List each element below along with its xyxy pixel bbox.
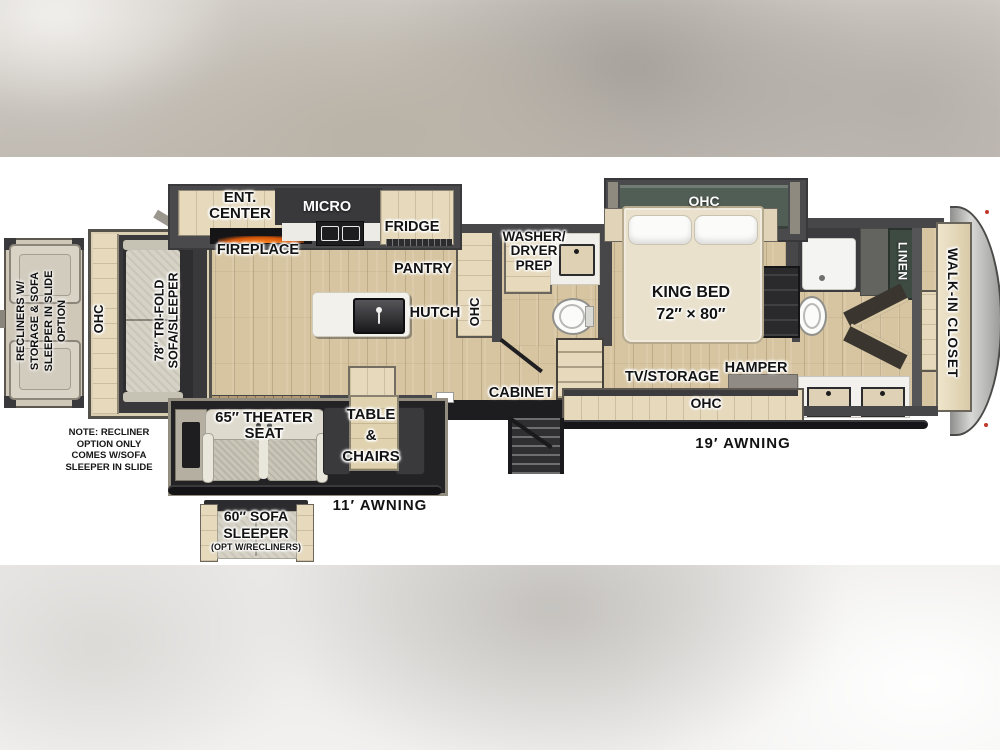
trifold-sofa-label: 78″ TRI-FOLD SOFA/SLEEPER (153, 245, 182, 395)
bedroom-tv-cabinet (762, 266, 800, 338)
background-blur-top-blob (0, 0, 1000, 157)
option-hitch-tab (0, 310, 5, 328)
sofa-opt-line-2: SLEEPER (196, 525, 316, 542)
rear-toilet-ring (803, 303, 821, 329)
background-blur-bottom (0, 565, 1000, 750)
theater-seat-left (209, 439, 261, 481)
entry-steps (508, 418, 564, 474)
background-blur-bottom-blob (0, 565, 1000, 750)
table-chairs-label: TABLE & CHAIRS (338, 404, 404, 467)
rear-toilet (797, 296, 827, 336)
sofa-option-label: 60″ SOFA SLEEPER (OPT W/RECLINERS) (196, 508, 316, 552)
note-line-3: COMES W/SOFA (52, 450, 166, 462)
note-line-4: SLEEPER IN SLIDE (52, 462, 166, 474)
tv-storage-label: TV/STORAGE (616, 370, 728, 385)
awning-19-label: 19′ AWNING (688, 436, 798, 452)
awning-rail-11ft (168, 485, 442, 495)
table-line-3: CHAIRS (338, 446, 404, 467)
vanity-faucet-left (826, 391, 831, 396)
rear-bath-divider (860, 228, 890, 296)
ohc-console-label: OHC (676, 396, 736, 411)
wd-line-2: DRYER (492, 244, 576, 258)
sofa-opt-line-1: 60″ SOFA (196, 508, 316, 525)
theater-seat-label: 65″ THEATER SEAT (198, 410, 330, 442)
ent-center-label: ENT. CENTER (190, 190, 290, 222)
micro-label: MICRO (300, 200, 354, 215)
hutch-label: HUTCH (406, 306, 464, 321)
marker-light-bottom (984, 423, 988, 427)
burner-grate-right (342, 226, 360, 241)
fridge-label: FRIDGE (383, 220, 441, 235)
pillow-left (628, 215, 692, 245)
hamper-label: HAMPER (720, 361, 792, 376)
awning-11-label: 11′ AWNING (330, 498, 430, 514)
entry-platform (428, 400, 570, 420)
wd-line-3: PREP (492, 259, 576, 273)
king-bed-line-2: 72″ × 80″ (622, 304, 760, 326)
fireplace-label: FIREPLACE (214, 243, 302, 258)
rv-floorplan-screenshot: { "title": "Fifth-wheel RV floor plan", … (0, 0, 1000, 750)
pillow-right (694, 215, 758, 245)
ohc-kitchen-label: OHC (468, 292, 482, 332)
option-box-label: RECLINERS W/ STORAGE & SOFA SLEEPER IN S… (15, 237, 73, 405)
bathroom-right-wall (598, 224, 612, 346)
ohc-bedroom-label: OHC (672, 194, 736, 209)
table-hutch (348, 366, 396, 398)
marker-light-top (985, 210, 989, 214)
king-bed-line-1: KING BED (622, 282, 760, 304)
table-line-2: & (338, 425, 404, 446)
nightstand-left (604, 208, 624, 242)
island-sink (353, 298, 405, 334)
walk-in-closet-label: WALK-IN CLOSET (945, 223, 959, 403)
option-line-4: OPTION (56, 237, 70, 405)
faucet-neck (378, 312, 380, 324)
toilet (552, 298, 594, 335)
vanity-faucet-right (880, 391, 885, 396)
kitchen-island (312, 292, 410, 337)
refrigerator (380, 190, 454, 245)
washer-dryer-label: WASHER/ DRYER PREP (492, 230, 576, 273)
toilet-tank (585, 306, 594, 327)
note-line-1: NOTE: RECLINER (52, 427, 166, 439)
option-line-1: RECLINERS W/ (15, 237, 29, 405)
awning-rail-19ft (560, 420, 928, 429)
king-bed-label: KING BED 72″ × 80″ (622, 282, 760, 325)
cabinet-label: CABINET (486, 386, 556, 401)
bed-slide-post-right (790, 182, 800, 234)
trifold-line-2: SOFA/SLEEPER (167, 245, 181, 395)
note-line-2: OPTION ONLY (52, 439, 166, 451)
burner-grate-left (321, 226, 339, 241)
recliner-option-module: RECLINERS W/ STORAGE & SOFA SLEEPER IN S… (4, 238, 84, 408)
theater-seat-right (267, 439, 319, 481)
recliner-note: NOTE: RECLINER OPTION ONLY COMES W/SOFA … (52, 427, 166, 473)
shower-drain (819, 275, 825, 281)
fridge-vent (386, 239, 452, 246)
trifold-line-1: 78″ TRI-FOLD (153, 245, 167, 395)
pantry-label: PANTRY (388, 262, 458, 277)
shower-pan (802, 238, 856, 290)
option-line-3: SLEEPER IN SLIDE (43, 237, 57, 405)
background-blur-top (0, 0, 1000, 157)
option-line-2: STORAGE & SOFA (29, 237, 43, 405)
theater-line-2: SEAT (198, 426, 330, 442)
cooktop (316, 221, 364, 246)
sofa-opt-line-3: (OPT W/RECLINERS) (196, 542, 316, 553)
ohc-slide-label: OHC (92, 295, 106, 343)
linen-label: LINEN (896, 231, 909, 291)
theater-line-1: 65″ THEATER (198, 410, 330, 426)
toilet-ring (559, 304, 585, 329)
top-wall-rear (796, 218, 944, 228)
ent-line-2: CENTER (190, 206, 290, 222)
table-line-1: TABLE (338, 404, 404, 425)
ent-line-1: ENT. (190, 190, 290, 206)
sofa-slideout: OHC 78″ TRI-FOLD SOFA/SLEEPER (88, 229, 212, 419)
